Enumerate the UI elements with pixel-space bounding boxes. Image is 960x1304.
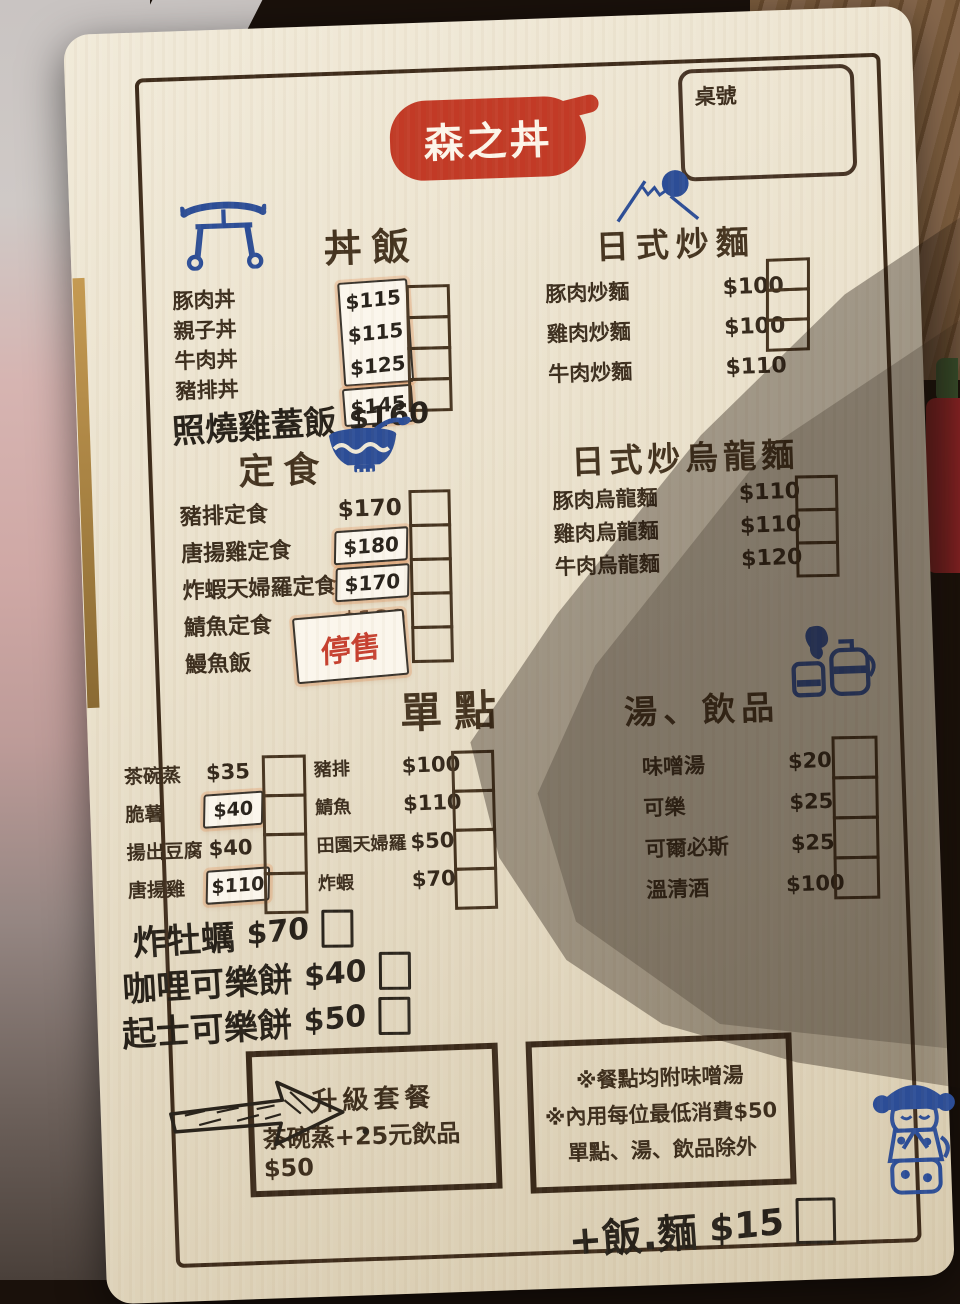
order-checkbox	[410, 557, 453, 595]
table-number-box: 桌號	[678, 64, 858, 182]
item-price: $40	[304, 953, 367, 994]
order-checkbox	[832, 776, 879, 820]
note-line: ※內用每位最低消費$50	[544, 1094, 777, 1132]
order-checkbox-handdrawn	[321, 909, 353, 947]
order-checkbox	[451, 750, 495, 793]
item-price: $110	[737, 479, 802, 506]
order-checkbox	[795, 475, 839, 512]
order-checkbox-handdrawn	[378, 996, 410, 1034]
restaurant-logo-text: 森之丼	[422, 107, 553, 169]
order-checkbox	[834, 856, 881, 900]
menu-item: 揚出豆腐$40	[126, 827, 281, 870]
single-items-col-a: 茶碗蒸$35 脆薯$40 揚出豆腐$40 唐揚雞$110	[123, 751, 282, 908]
note-line: 單點、湯、飲品除外	[567, 1131, 757, 1168]
order-checkbox	[766, 317, 810, 352]
item-name: 唐揚雞	[127, 873, 206, 903]
order-checkbox	[833, 816, 880, 860]
addon-name: +飯.麵	[566, 1200, 698, 1267]
menu-item: 脆薯$40	[125, 789, 280, 832]
order-checkbox	[262, 794, 307, 837]
item-name: 溫清酒	[646, 869, 787, 904]
price-cell: $170	[329, 488, 410, 528]
order-checkbox	[406, 315, 451, 350]
order-checkbox	[453, 828, 497, 871]
item-name: 豚肉丼	[172, 283, 236, 315]
order-checkbox	[452, 789, 496, 832]
background-bottle-green	[936, 358, 958, 402]
item-name: 起士可樂餅	[120, 997, 293, 1056]
udon-items: 豚肉烏龍麵$110 雞肉烏龍麵$110 牛肉烏龍麵$120	[552, 475, 804, 583]
item-price: $180	[334, 526, 408, 565]
order-checkbox	[454, 867, 498, 910]
checkbox-column	[262, 755, 309, 915]
item-name: 可爾必斯	[644, 828, 785, 863]
menu-item: 可樂$25	[643, 780, 840, 828]
hand-drawn-arrow-icon	[163, 1067, 378, 1156]
restaurant-logo: 森之丼	[389, 95, 588, 182]
item-name: 炸蝦天婦羅定食	[182, 567, 337, 604]
menu-item: 牛肉炒麵$110	[548, 345, 789, 393]
soup-drinks-items: 味噌湯$20 可樂$25 可爾必斯$25 溫清酒$100	[641, 739, 843, 910]
menu-item: 炸蝦$70	[317, 859, 462, 902]
item-name: 茶碗蒸	[124, 759, 203, 789]
checkbox-column	[408, 489, 454, 663]
note-line: ※餐點均附味噌湯	[576, 1059, 744, 1095]
item-name: 豬排定食	[179, 496, 268, 531]
menu-item: 親子丼	[173, 313, 237, 345]
order-checkbox	[406, 284, 451, 319]
checkbox-column	[795, 475, 840, 578]
section-title-yakisoba: 日式炒麵	[595, 215, 757, 269]
item-price: $20	[781, 747, 838, 773]
item-name: 牛肉烏龍麵	[554, 544, 740, 580]
item-price: $110	[738, 512, 803, 539]
order-checkbox	[407, 346, 452, 381]
item-name: 豬排	[313, 753, 402, 782]
sake-set-icon	[782, 623, 881, 704]
order-checkbox	[411, 591, 454, 629]
item-name: 雞肉炒麵	[546, 312, 723, 348]
item-name: 可樂	[643, 787, 784, 822]
menu-board: 森之丼 桌號 丼飯 豚肉丼 親子丼 牛肉丼 豬排丼 $115 $115 $125…	[63, 6, 955, 1304]
torii-gate-icon	[180, 194, 269, 271]
order-checkbox-handdrawn	[378, 951, 410, 989]
order-checkbox	[263, 833, 308, 876]
item-name: 脆薯	[125, 797, 204, 827]
donburi-items: 豚肉丼 親子丼 牛肉丼 豬排丼	[172, 283, 239, 405]
menu-item: 豚肉丼	[172, 283, 236, 315]
rice-bowl-icon	[324, 413, 414, 482]
price-cell: $180	[330, 525, 411, 565]
menu-item: 唐揚雞$110	[127, 865, 282, 908]
item-name: 田園天婦羅	[316, 829, 405, 858]
menu-item: 豬排$100	[313, 745, 458, 788]
order-checkbox	[409, 523, 452, 561]
section-title-teishoku: 定食	[237, 440, 329, 495]
order-checkbox	[831, 736, 878, 780]
order-checkbox-handdrawn	[795, 1197, 836, 1244]
item-price: $120	[739, 545, 804, 572]
section-title-donburi: 丼飯	[323, 215, 421, 273]
item-price: $40	[203, 791, 263, 829]
menu-item: 可爾必斯$25	[644, 821, 841, 869]
item-name: 炸蝦	[317, 867, 406, 896]
item-price: $170	[335, 563, 409, 602]
item-price: $115	[348, 317, 404, 347]
item-price: $50	[304, 998, 367, 1039]
item-name: 味噌湯	[641, 746, 782, 781]
item-name: 鯖魚	[315, 791, 404, 820]
sold-out-sticker: 停售	[292, 609, 409, 685]
item-price: $110	[724, 353, 789, 380]
item-name: 鰻魚飯	[185, 645, 252, 679]
item-name: 雞肉烏龍麵	[553, 511, 739, 547]
menu-item: 鯖魚$110	[315, 783, 460, 826]
menu-item: 茶碗蒸$35	[123, 751, 278, 794]
item-name: 親子丼	[173, 313, 237, 345]
section-title-single: 單點	[399, 676, 509, 741]
sold-out-label: 停售	[320, 621, 380, 673]
price-sticker-group: $115 $115 $125	[337, 278, 414, 387]
checkbox-column	[766, 257, 810, 352]
single-items-col-b: 豬排$100 鯖魚$110 田園天婦羅$50 炸蝦$70	[313, 745, 462, 902]
item-name: 唐揚雞定食	[181, 532, 292, 568]
table-number-label: 桌號	[694, 76, 851, 111]
item-price: $170	[337, 494, 402, 522]
item-price: $115	[345, 284, 401, 314]
order-checkbox	[262, 755, 307, 798]
checkbox-column	[451, 750, 498, 910]
item-price: $110	[403, 790, 460, 816]
notes-box: ※餐點均附味噌湯 ※內用每位最低消費$50 單點、湯、飲品除外	[526, 1032, 797, 1193]
item-name: 鯖魚定食	[183, 607, 272, 642]
background-bottle-red	[926, 398, 960, 573]
menu-item: 唐揚雞定食	[181, 528, 336, 570]
item-name: 豚肉炒麵	[545, 272, 722, 308]
order-checkbox	[796, 541, 840, 578]
order-checkbox	[795, 508, 839, 545]
order-checkbox	[408, 489, 451, 527]
addon-price: $15	[709, 1201, 784, 1250]
section-title-soup-drinks: 湯、飲品	[623, 681, 781, 734]
menu-item: 田園天婦羅$50	[316, 821, 461, 864]
price-cell: $170	[332, 562, 413, 602]
menu-item: 炸蝦天婦羅定食	[182, 565, 337, 607]
checkbox-column	[831, 736, 880, 900]
menu-item: 牛肉丼	[174, 343, 238, 375]
item-price: $125	[350, 351, 406, 381]
item-price: $40	[204, 835, 257, 861]
menu-item: 豬排定食	[179, 491, 334, 533]
item-price: $35	[202, 759, 255, 785]
item-price: $110	[206, 866, 270, 905]
item-price: $70	[246, 911, 309, 952]
order-checkbox	[411, 625, 454, 663]
item-name: 豚肉烏龍麵	[552, 478, 738, 514]
kokeshi-doll-icon	[868, 1071, 960, 1198]
menu-item: 味噌湯$20	[641, 739, 838, 787]
item-price: $25	[783, 788, 840, 814]
yakisoba-items: 豚肉炒麵$100 雞肉炒麵$100 牛肉炒麵$110	[545, 265, 789, 393]
item-name: 牛肉炒麵	[548, 352, 725, 388]
menu-item: 溫清酒$100	[646, 862, 843, 910]
item-price: $100	[401, 752, 458, 778]
item-name: 牛肉丼	[174, 343, 238, 375]
item-name: 揚出豆腐	[126, 835, 205, 865]
